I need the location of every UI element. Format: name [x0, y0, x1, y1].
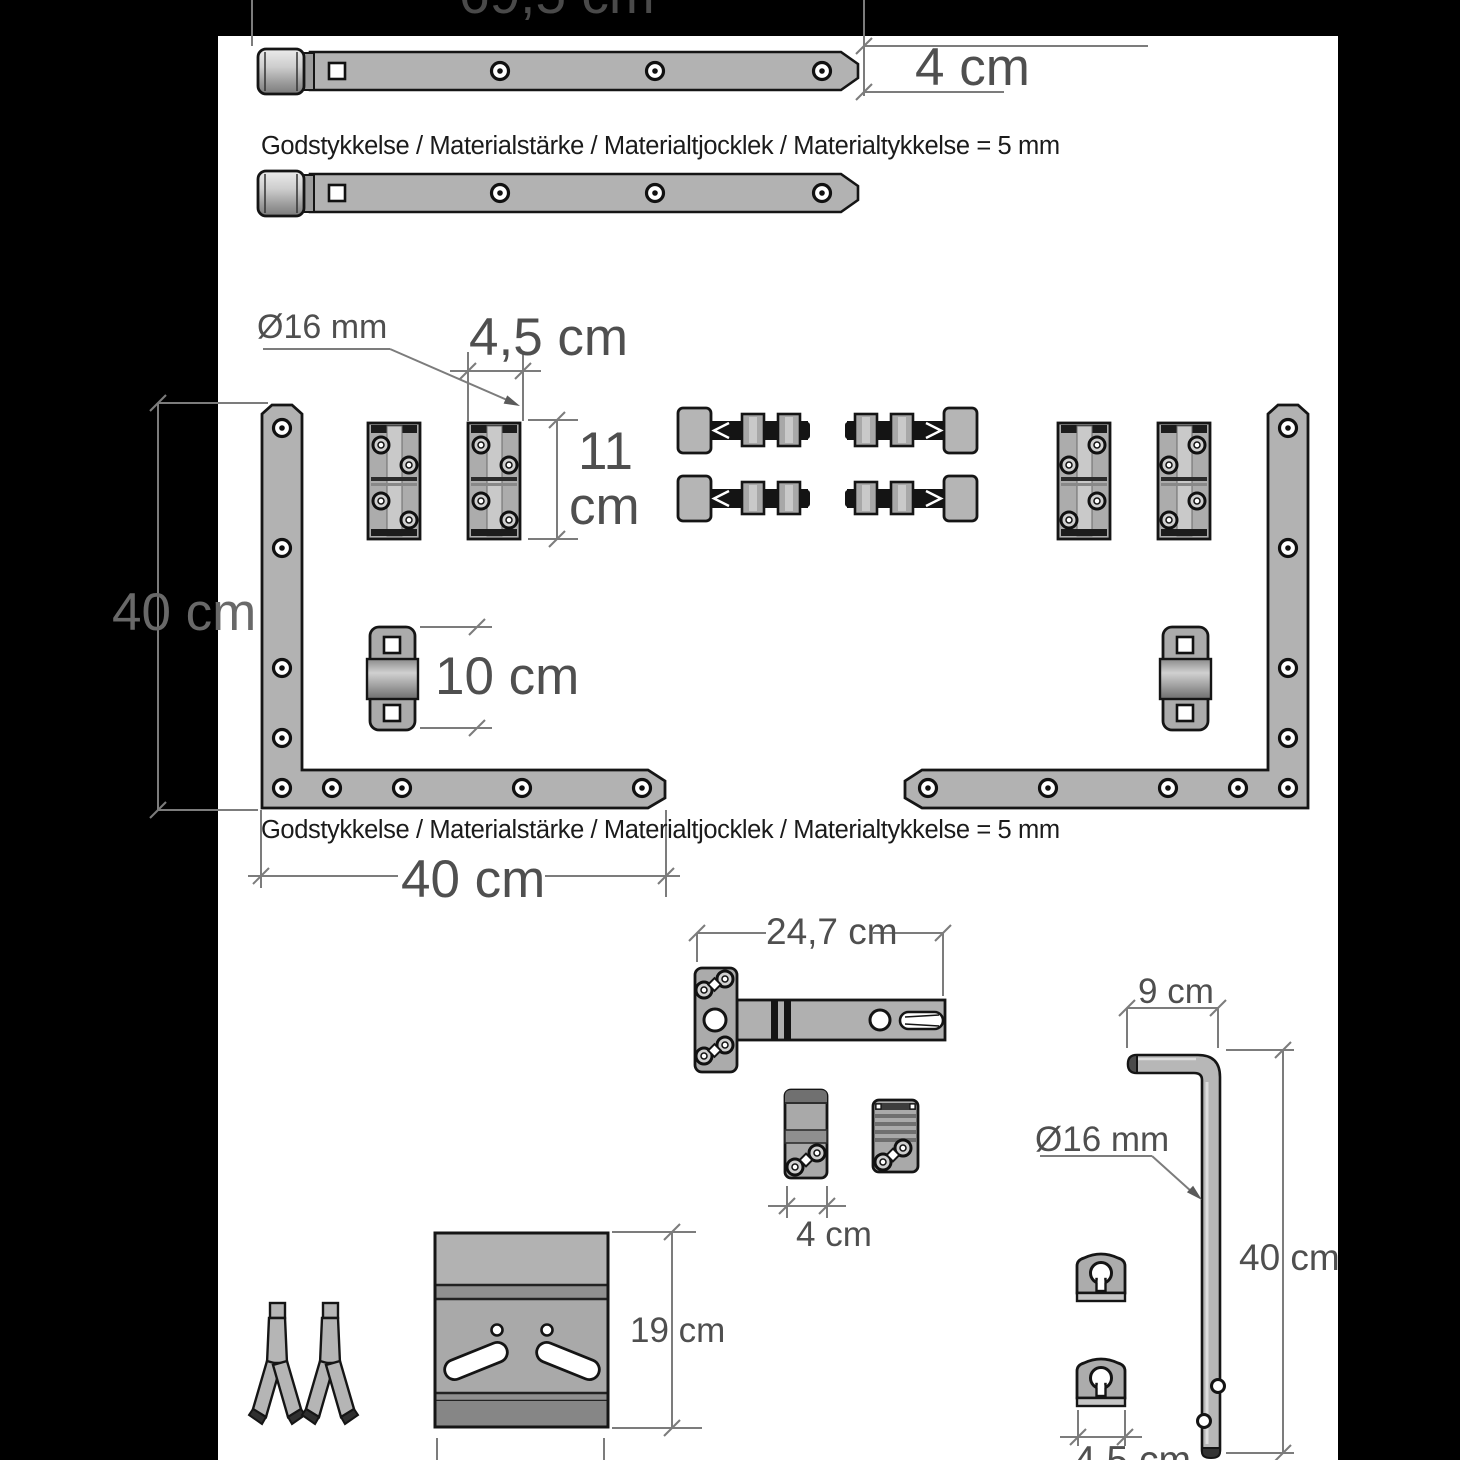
dim-label-strap-width: 4 cm	[915, 41, 1030, 94]
dim-label-latch-length: 24,7 cm	[766, 913, 898, 950]
hardware-dimension-diagram: 69,5 cm 4 cm Godstykkelse / Materialstär…	[0, 0, 1460, 1460]
dim-label-bracket-height: 40 cm	[112, 586, 256, 639]
drawing-panel	[218, 36, 1338, 1460]
dim-label-hinge-pin-diameter: Ø16 mm	[257, 310, 387, 344]
dim-label-drop-bolt-arm: 9 cm	[1138, 974, 1214, 1009]
dim-label-drop-bolt-length: 40 cm	[1239, 1239, 1340, 1276]
material-thickness-note-top: Godstykkelse / Materialstärke / Material…	[261, 134, 1060, 160]
material-thickness-note-bottom: Godstykkelse / Materialstärke / Material…	[261, 818, 1060, 844]
dim-label-hinge-height-value: 11	[578, 425, 633, 478]
dim-label-guide-width: 4,5 cm	[1074, 1441, 1191, 1460]
dim-label-latch-plate-width: 4 cm	[796, 1217, 872, 1252]
dim-label-hinge-height-unit: cm	[569, 480, 640, 533]
dim-label-top-length: 69,5 cm	[459, 0, 655, 22]
dim-label-plate-height: 19 cm	[630, 1313, 725, 1348]
dim-label-bracket-length: 40 cm	[401, 853, 545, 906]
dim-label-keeper-length: 10 cm	[435, 650, 579, 703]
dim-label-drop-bolt-diameter: Ø16 mm	[1035, 1122, 1169, 1157]
dim-label-hinge-width: 4,5 cm	[469, 311, 628, 364]
